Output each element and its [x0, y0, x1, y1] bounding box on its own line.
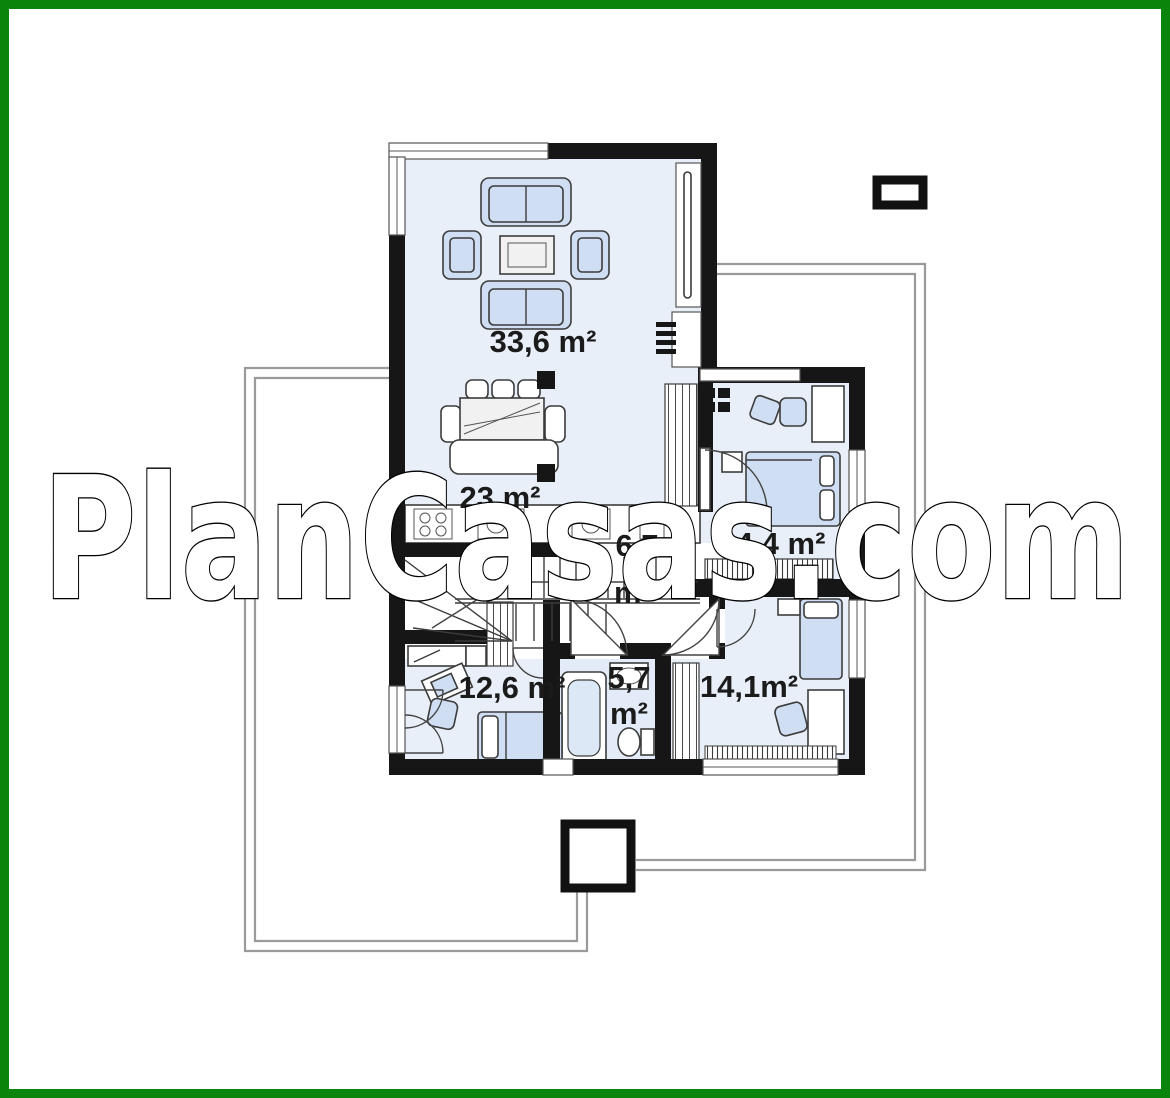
radiator — [705, 746, 836, 759]
dining-chair — [518, 380, 540, 399]
desk-chair — [780, 398, 806, 426]
desk — [808, 690, 844, 754]
armchair-left-cushion — [450, 238, 474, 272]
label-bedroom-bottom-right: 14,1m² — [700, 669, 798, 704]
wall-niche — [700, 369, 800, 381]
pillow — [482, 716, 498, 758]
toilet-tank — [641, 729, 654, 755]
glazing-leaf — [684, 172, 691, 298]
label-living-room: 33,6 m² — [490, 324, 597, 359]
dining-chair-side-left — [441, 406, 461, 442]
shelf-desk — [408, 646, 466, 666]
chimney-bottom — [565, 824, 631, 888]
dining-chair — [466, 380, 488, 399]
label-bedroom-bottom-left: 12,6 m² — [459, 670, 566, 705]
armchair-right-cushion — [578, 238, 602, 272]
window-bottom-small — [543, 759, 573, 775]
bathtub-inner — [568, 680, 600, 756]
toilet-bowl — [618, 728, 640, 756]
floor-plan-page: 33,6 m² 23 m² 6,7 m² 14,4 m² 12,6 m² 5,7… — [0, 0, 1170, 1098]
wardrobe-strip — [673, 663, 699, 763]
nightstand — [466, 646, 486, 666]
label-bathroom-value: 5,7 — [607, 660, 650, 695]
dining-chair-side-right — [545, 406, 565, 442]
column — [537, 371, 555, 389]
watermark-text: PlanCasas.com — [42, 441, 1130, 639]
glazing-living-right-lower — [672, 312, 701, 367]
chimney-top-right — [877, 180, 923, 205]
label-bathroom-unit: m² — [610, 696, 648, 731]
desk — [812, 386, 844, 442]
dining-chair — [492, 380, 514, 399]
floor-plan-drawing: 33,6 m² 23 m² 6,7 m² 14,4 m² 12,6 m² 5,7… — [0, 0, 1170, 1098]
